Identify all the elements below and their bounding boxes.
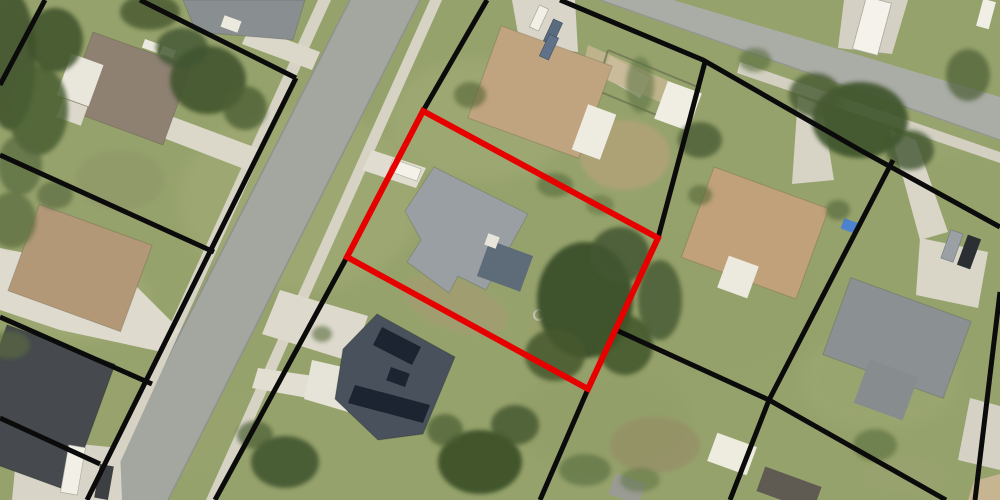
tree-canopy <box>789 73 841 117</box>
map-canvas[interactable] <box>0 0 1000 500</box>
tree-canopy <box>739 48 771 72</box>
aerial-parcel-map[interactable] <box>0 0 1000 500</box>
bush <box>688 185 712 205</box>
tree-canopy <box>223 86 267 130</box>
bush <box>312 326 332 342</box>
tree-canopy <box>853 429 897 461</box>
tree-canopy <box>946 49 990 101</box>
bare-dirt <box>610 417 700 473</box>
tree-canopy <box>454 82 486 108</box>
tree-canopy <box>427 414 463 446</box>
hedge <box>626 57 654 113</box>
scrub <box>75 150 165 210</box>
tree-canopy <box>156 28 208 68</box>
scrub <box>620 468 660 492</box>
tree-canopy <box>491 405 539 445</box>
scrub <box>559 454 611 486</box>
bush <box>826 200 850 220</box>
